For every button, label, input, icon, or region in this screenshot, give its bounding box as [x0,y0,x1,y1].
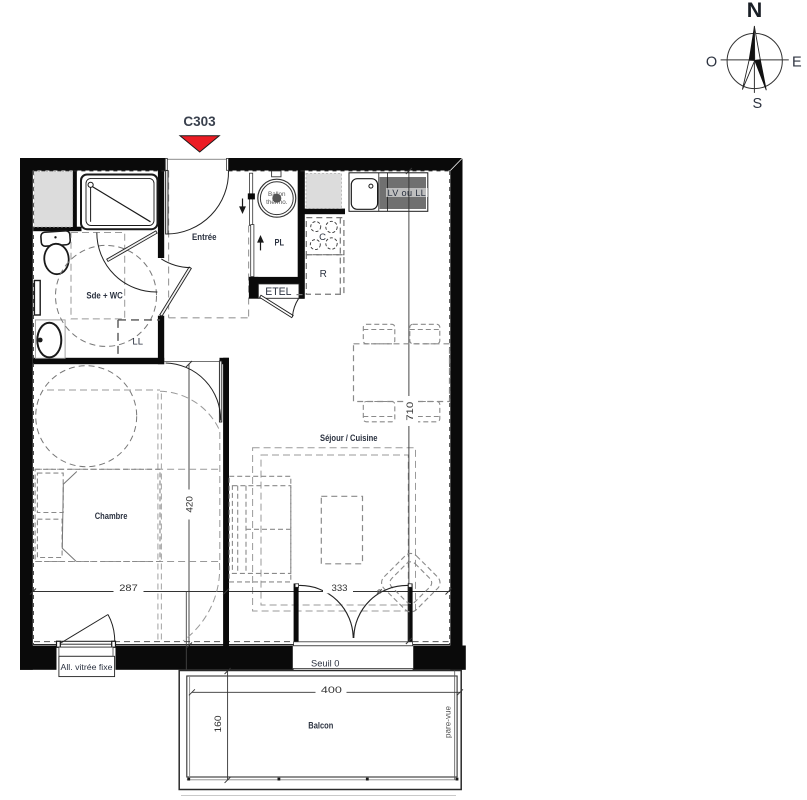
svg-text:Ballon: Ballon [268,191,286,198]
svg-text:160: 160 [213,716,224,733]
svg-text:LV ou LL: LV ou LL [388,188,427,198]
svg-text:C303: C303 [183,114,216,129]
svg-text:Séjour / Cuisine: Séjour / Cuisine [320,433,378,443]
svg-text:S: S [752,96,762,112]
svg-text:Seuil 0: Seuil 0 [311,659,340,669]
svg-text:400: 400 [321,685,342,696]
svg-text:Entrée: Entrée [192,232,217,242]
svg-text:420: 420 [185,496,196,513]
svg-text:Sde + WC: Sde + WC [86,291,123,301]
svg-text:PL: PL [275,238,285,248]
svg-text:N: N [747,0,763,22]
svg-text:710: 710 [405,402,416,421]
svg-text:All. vitrée fixe: All. vitrée fixe [61,662,113,672]
svg-text:Chambre: Chambre [95,511,128,521]
svg-text:Balcon: Balcon [308,721,333,731]
svg-text:pare-vue: pare-vue [444,705,453,738]
svg-text:O: O [706,54,717,70]
svg-text:C: C [319,232,326,243]
svg-text:ETEL: ETEL [265,286,291,298]
svg-text:287: 287 [119,583,138,594]
svg-text:E: E [792,54,802,70]
svg-text:thermo.: thermo. [266,199,288,206]
svg-text:R: R [320,269,327,280]
svg-text:LL: LL [132,337,143,348]
svg-text:333: 333 [332,583,348,594]
